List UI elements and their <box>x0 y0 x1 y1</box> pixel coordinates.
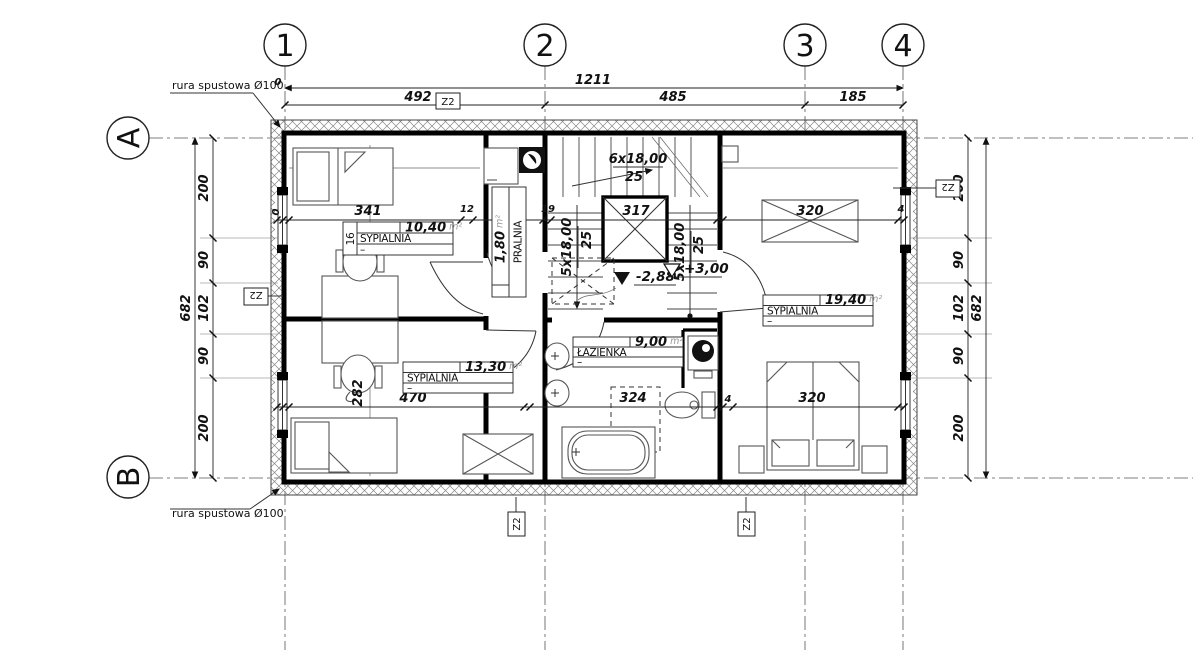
nightstand-right <box>862 446 887 473</box>
svg-text:Z2: Z2 <box>742 517 753 530</box>
dim-left-90a: 90 <box>197 251 212 269</box>
dim-left-total: 682 <box>179 294 194 321</box>
downpipe-note-bottom: rura spustowa Ø100 <box>170 489 284 520</box>
window-right-lower <box>897 372 913 438</box>
downpipe-note-top: rura spustowa Ø100 <box>170 79 284 127</box>
room-name: PRALNIA <box>513 220 525 263</box>
stair-start-dot <box>687 313 692 318</box>
svg-text:+3,00: +3,00 <box>684 261 729 277</box>
axis-bubble-A: A <box>107 117 149 159</box>
top-dimensions: 0 1211 492 Z2 485 185 <box>275 73 903 109</box>
dim-492: 492 <box>403 90 431 105</box>
wardrobe-sw <box>463 434 533 474</box>
dim-right-90a: 90 <box>952 251 967 269</box>
sink-upper <box>545 343 569 369</box>
dim-19: 19 <box>541 204 555 215</box>
room-name: SYPIALNIA <box>360 233 412 245</box>
stair-up-count: 6x18,00 <box>609 152 668 167</box>
room-table-laundry: 1,80m² PRALNIA <box>492 187 526 297</box>
laundry-counter <box>484 148 518 184</box>
floor-plan: 6x18,00 25 5x18,00 25 5x18,00 25 <box>0 0 1200 650</box>
stair-up-tread: 25 <box>625 170 643 185</box>
axis-label-A: A <box>112 127 147 148</box>
window-left-lower <box>275 372 291 438</box>
dim-left-102: 102 <box>197 294 212 321</box>
room-number: 16 <box>345 232 357 245</box>
axis-bubble-3: 3 <box>784 24 826 66</box>
axis-bubble-2: 2 <box>524 24 566 66</box>
dim-317: 317 <box>622 204 650 219</box>
left-dimensions: 200 90 102 90 200 682 <box>179 138 278 478</box>
bed-nw <box>293 148 393 205</box>
dim-282: 282 <box>351 379 366 406</box>
svg-text:Z2: Z2 <box>941 181 954 192</box>
dim-4-upper: 4 <box>897 204 905 215</box>
dim-4-lower: 4 <box>724 394 732 405</box>
dim-left-200b: 200 <box>197 414 212 441</box>
dim-left-90b: 90 <box>197 347 212 365</box>
room-note: – <box>767 316 772 328</box>
dim-right-total: 682 <box>970 294 985 321</box>
axis-label-2: 2 <box>535 29 554 64</box>
svg-text:Z2: Z2 <box>249 289 262 300</box>
level-marker-up: +3,00 <box>664 261 729 277</box>
dim-341: 341 <box>354 204 381 219</box>
dim-right-200b: 200 <box>952 414 967 441</box>
room-name: SYPIALNIA <box>407 373 459 385</box>
room-note: – <box>407 383 412 395</box>
z2-marker-bottom-right: Z2 <box>738 497 755 536</box>
sink-lower <box>545 380 569 406</box>
stair-left-count: 5x18,00 <box>560 218 575 277</box>
axis-label-4: 4 <box>893 29 912 64</box>
room-name: ŁAZIENKA <box>576 347 627 359</box>
dim-185: 185 <box>839 90 866 105</box>
dim-320-lower: 320 <box>798 391 825 406</box>
nightstand-left <box>739 446 764 473</box>
dim-485: 485 <box>658 90 686 105</box>
room-table-bedroom-east: 19,40m² SYPIALNIA – <box>763 293 882 328</box>
room-table-bedroom-sw: 13,30m² SYPIALNIA – <box>403 360 522 395</box>
dim-right-90b: 90 <box>952 347 967 365</box>
axis-bubble-4: 4 <box>882 24 924 66</box>
washing-machine-laundry <box>519 147 545 173</box>
bed-sw <box>291 418 397 473</box>
room-name: SYPIALNIA <box>767 306 819 318</box>
svg-text:rura spustowa Ø100: rura spustowa Ø100 <box>172 79 284 92</box>
stair-left-tread: 25 <box>580 231 595 249</box>
dim-total-width: 1211 <box>575 73 611 88</box>
bathtub <box>562 427 655 478</box>
toilet <box>665 392 715 418</box>
dim-12: 12 <box>460 204 474 215</box>
dim-320-upper: 320 <box>796 204 823 219</box>
z2-marker-bottom-left: Z2 <box>508 497 525 536</box>
svg-text:Z2: Z2 <box>441 97 454 108</box>
dim-324: 324 <box>619 391 646 406</box>
axis-label-B: B <box>112 467 147 488</box>
axis-bubble-1: 1 <box>264 24 306 66</box>
axis-bubble-B: B <box>107 456 149 498</box>
room-note: – <box>360 244 365 256</box>
room-table-bedroom-nw: 16 10,40m² SYPIALNIA – <box>343 221 462 257</box>
dim-left-200a: 200 <box>197 174 212 201</box>
axis-label-1: 1 <box>275 29 294 64</box>
svg-text:Z2: Z2 <box>512 517 523 530</box>
stair-right-tread: 25 <box>692 236 707 254</box>
room-note: – <box>577 357 582 369</box>
room-table-bathroom: 9,00m² ŁAZIENKA – <box>573 335 683 369</box>
dim-mid-zero: 0 <box>271 208 282 215</box>
z2-marker-top: Z2 <box>436 93 460 109</box>
dim-right-102: 102 <box>952 294 967 321</box>
axis-label-3: 3 <box>795 29 814 64</box>
